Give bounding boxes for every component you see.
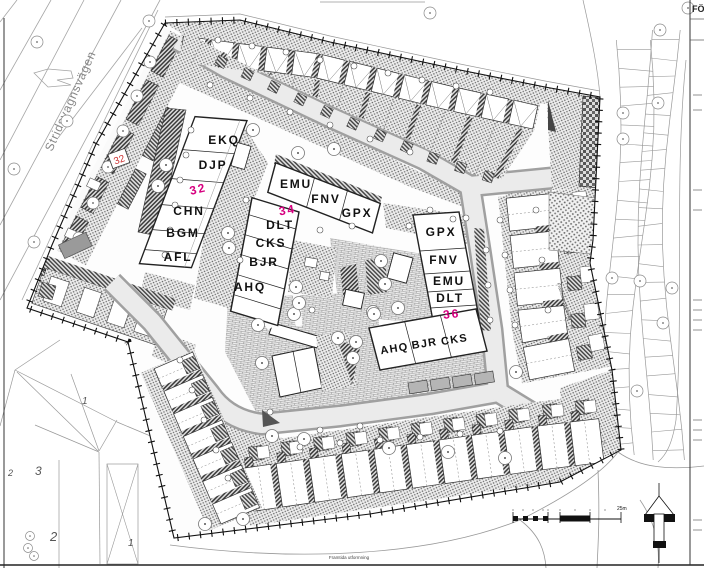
svg-text:AHQ: AHQ — [234, 280, 266, 294]
svg-text:FNV: FNV — [311, 192, 340, 206]
svg-text:CKS: CKS — [256, 236, 287, 250]
svg-text:CHN: CHN — [173, 204, 204, 218]
svg-text:EMU: EMU — [433, 274, 465, 288]
svg-text:34: 34 — [278, 202, 297, 219]
svg-text:DLT: DLT — [436, 291, 464, 305]
svg-text:2: 2 — [49, 529, 58, 544]
svg-text:Framtida utformning: Framtida utformning — [329, 555, 370, 560]
svg-text:36: 36 — [442, 306, 460, 322]
svg-text:1: 1 — [82, 396, 88, 407]
svg-text:BJR: BJR — [249, 255, 278, 269]
svg-text:GPX: GPX — [342, 206, 373, 220]
svg-text:BGM: BGM — [166, 226, 199, 240]
svg-text:3: 3 — [35, 464, 42, 478]
svg-text:GPX: GPX — [426, 225, 457, 239]
svg-text:25m: 25m — [617, 506, 627, 512]
svg-text:FÖ: FÖ — [692, 4, 704, 14]
svg-text:EMU: EMU — [280, 177, 312, 191]
svg-text:DLT: DLT — [266, 218, 294, 232]
svg-text:1: 1 — [128, 538, 134, 549]
svg-text:2: 2 — [7, 468, 13, 478]
svg-text:DJP: DJP — [199, 158, 228, 172]
svg-text:AFL: AFL — [164, 250, 193, 264]
svg-text:EKQ: EKQ — [208, 133, 239, 147]
svg-text:FNV: FNV — [429, 253, 458, 267]
